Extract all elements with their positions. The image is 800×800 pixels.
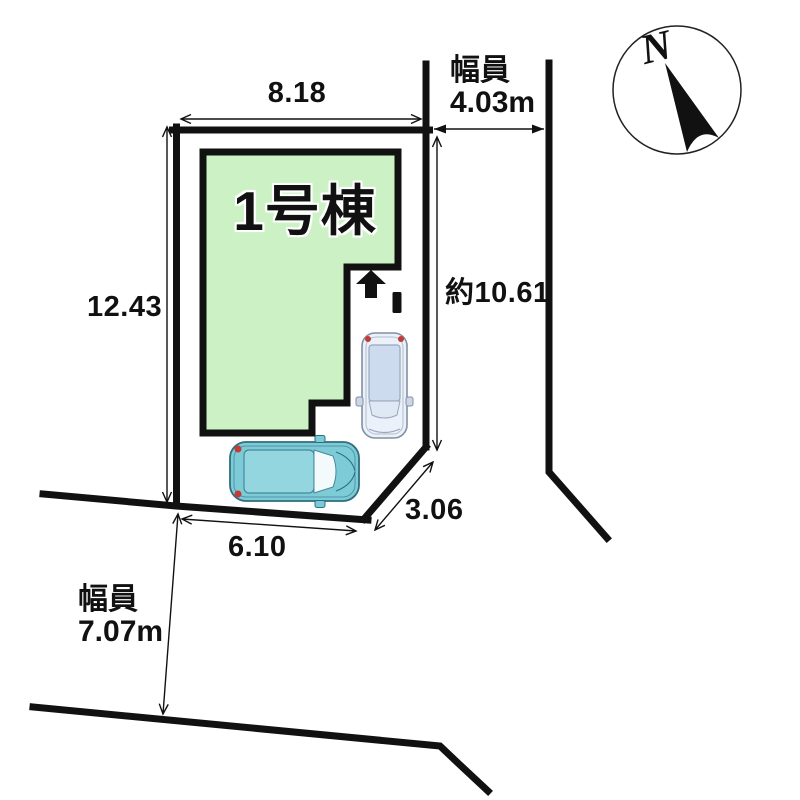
road-width-right-value: 4.03m [450, 87, 535, 119]
dim-label-left: 12.43 [87, 292, 162, 322]
road-width-label-bottom: 幅員 7.07m [78, 584, 163, 649]
car-pale-windshield [369, 401, 400, 418]
site-plan: 8.18 幅員 4.03m 約10.61 12.43 6.10 3.06 幅員 … [0, 0, 800, 800]
car-teal-windshield [314, 450, 336, 493]
car-teal-mirror-top [315, 436, 325, 443]
entrance-arrow-icon [356, 270, 386, 298]
car-pale-roof [369, 345, 400, 401]
gate-post-marker [393, 292, 402, 313]
car-pale-taillight-right [398, 336, 404, 342]
dim-line-bottom-6-10 [182, 519, 356, 531]
car-teal-roof [244, 450, 314, 493]
compass [613, 26, 741, 154]
road-width-right-title: 幅員 [450, 55, 535, 87]
road-bottom-far-edge [33, 707, 488, 791]
building-label: 1号棟 [205, 183, 405, 241]
dim-line-road-bottom-7-07 [163, 514, 178, 714]
road-width-label-right: 幅員 4.03m [450, 55, 535, 120]
plan-drawing [0, 0, 800, 800]
dim-label-corner: 3.06 [405, 495, 463, 525]
dim-label-top: 8.18 [262, 78, 332, 108]
road-right-far-edge [549, 63, 607, 538]
car-pale-mirror-right [406, 397, 413, 406]
dim-label-bottom: 6.10 [228, 532, 286, 562]
car-pale-mirror-left [356, 397, 363, 406]
road-width-bottom-value: 7.07m [78, 616, 163, 648]
car-pale-taillight-left [365, 336, 371, 342]
car-teal-top-view [230, 436, 359, 508]
car-teal-mirror-bottom [315, 501, 325, 508]
car-teal-taillight-top [235, 446, 242, 453]
road-width-bottom-title: 幅員 [78, 584, 163, 616]
car-teal-taillight-bottom [235, 491, 242, 498]
car-pale-top-view [356, 333, 413, 438]
dim-label-right: 約10.61 [445, 278, 550, 308]
